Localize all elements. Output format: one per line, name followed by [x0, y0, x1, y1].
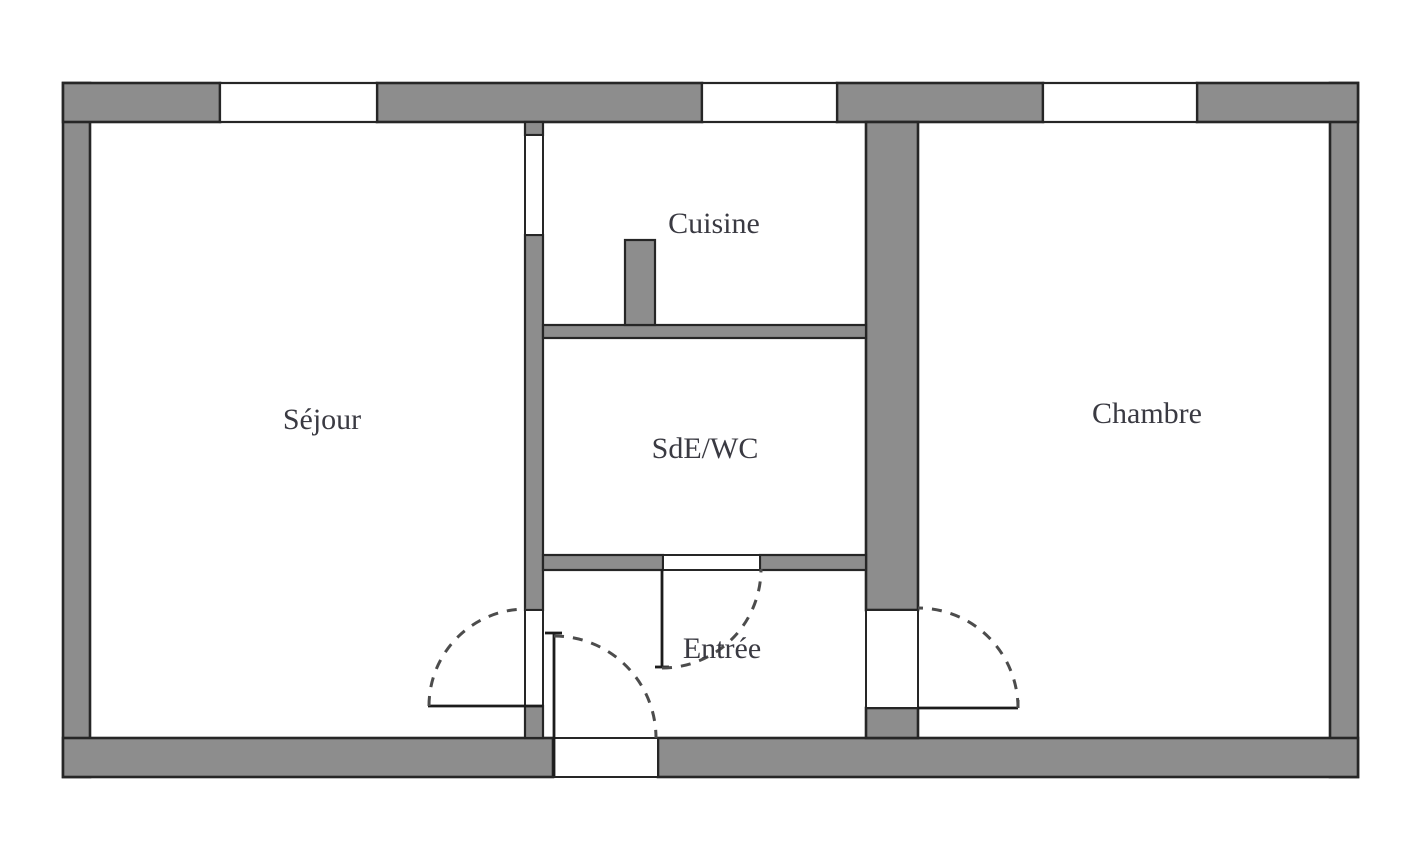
window-cuisine-icon	[702, 83, 837, 122]
plan-background	[0, 0, 1416, 850]
windows	[220, 83, 1197, 122]
wall-cuisine-stub	[625, 240, 655, 325]
wall-sejour-partition-middle	[525, 235, 543, 610]
room-label-sejour: Séjour	[283, 403, 361, 436]
room-label-entree: Entrée	[683, 632, 761, 665]
room-label-chambre: Chambre	[1092, 397, 1202, 430]
opening-sejour-entree	[525, 610, 543, 706]
room-label-cuisine: Cuisine	[668, 207, 760, 240]
room-label-sdewc: SdE/WC	[652, 432, 759, 465]
window-chambre-icon	[1043, 83, 1197, 122]
wall-top-segment-2	[377, 83, 702, 122]
window-sejour-icon	[220, 83, 377, 122]
wall-top-segment-4	[1197, 83, 1358, 122]
wall-exterior-left	[63, 83, 90, 777]
wall-sdewc-entree-left	[543, 555, 663, 570]
opening-sdewc-entree	[663, 555, 760, 570]
wall-cuisine-sdewc	[543, 325, 866, 338]
wall-bottom-segment-left	[63, 738, 553, 777]
opening-sejour-cuisine	[525, 135, 543, 235]
wall-bottom-segment-right	[658, 738, 1358, 777]
wall-top-segment-3	[837, 83, 1043, 122]
wall-sdewc-entree-right	[760, 555, 866, 570]
floor-plan-svg: Séjour Cuisine SdE/WC Entrée Chambre	[0, 0, 1416, 850]
wall-chambre-upper	[866, 122, 918, 610]
opening-main-entrance	[553, 738, 658, 777]
floor-plan: Séjour Cuisine SdE/WC Entrée Chambre	[0, 0, 1416, 850]
wall-exterior-right	[1330, 83, 1358, 777]
opening-entree-chambre	[866, 610, 918, 708]
wall-sejour-partition-top	[525, 122, 543, 135]
wall-sejour-partition-bottom	[525, 706, 543, 738]
wall-chambre-lower	[866, 708, 918, 738]
wall-top-segment-1	[63, 83, 220, 122]
